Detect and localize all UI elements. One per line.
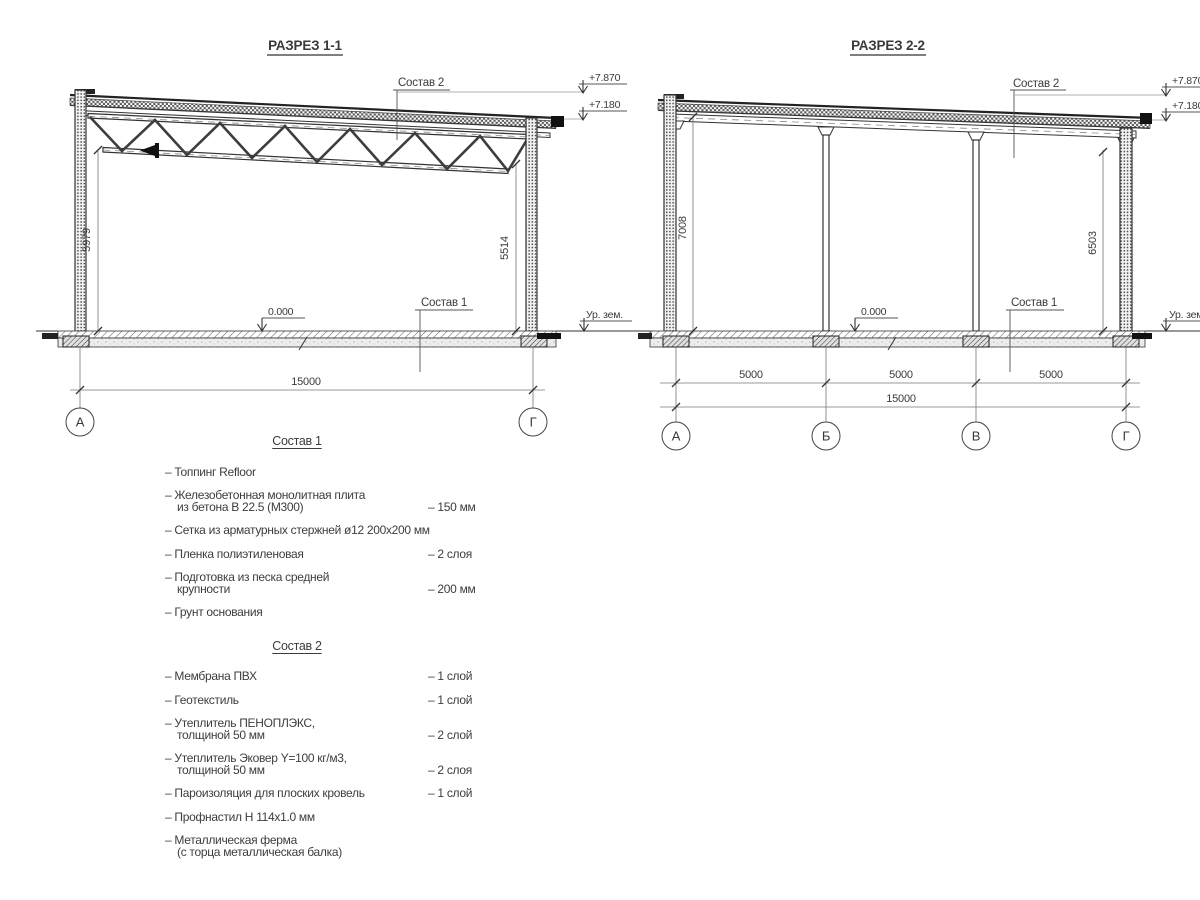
axis-markers: А Б В Г [662,422,1140,450]
column-v [973,140,979,331]
axis-v: В [972,429,980,444]
section-2-2-drawing: РАЗРЕЗ 2-2 [632,38,1200,450]
ground-level-label: Ур. зем. [1169,309,1200,321]
section-1-1-drawing: РАЗРЕЗ 1-1 [36,38,638,436]
dim-total: 15000 [886,393,916,405]
dim-height-right: 5514 [499,236,511,260]
axis-markers: А Г [66,408,547,436]
level-zero-label: 0.000 [268,306,294,318]
technical-drawing: РАЗРЕЗ 1-1 [0,0,1200,460]
sostav2-callout: Состав 2 [398,77,444,89]
item-value: – 1 слой [428,695,538,707]
floor-slab [36,331,638,350]
list-item: – Железобетонная монолитная плита из бет… [160,490,560,513]
list-item: – Металлическая ферма (с торца металличе… [160,835,560,858]
drawing-sheet: { "drawing": { "section1": { "title": "Р… [0,0,1200,900]
axis-g: Г [1123,429,1130,444]
list-item: – Сетка из арматурных стержней ø12 200x2… [160,525,560,537]
list-item: – Утеплитель Эковер Y=100 кг/м3, толщино… [160,753,560,776]
item-value: – 1 слой [428,671,538,683]
level-zero-label: 0.000 [861,306,887,318]
elevation-low-label: +7.180 [589,99,621,111]
list-item: – Мембрана ПВХ – 1 слой [160,671,560,683]
axis-b: Б [822,429,830,444]
roof-end-cap [1140,113,1152,124]
sostav1-callout: Состав 1 [1011,297,1057,309]
list-item: – Топпинг Refloor [160,467,560,479]
item-value: – 2 слоя [428,549,538,561]
left-wall [75,90,86,338]
section-2-title: РАЗРЕЗ 2-2 [851,38,925,53]
list-item: – Грунт основания [160,607,560,619]
sostav1-callout: Состав 1 [421,297,467,309]
foundation-pad [963,336,989,347]
section-1-title: РАЗРЕЗ 1-1 [268,38,342,53]
sostav1-list: Состав 1 – Топпинг Refloor – Железобетон… [160,436,560,619]
axis-g: Г [530,415,537,430]
right-wall [526,118,537,338]
elevation-top-label: +7.870 [1172,75,1200,87]
roof-assembly [658,100,1152,138]
elevation-top-label: +7.870 [589,72,621,84]
axis-a: А [672,429,681,444]
list-item: – Пароизоляция для плоских кровель – 1 с… [160,788,560,800]
sostav2-heading: Состав 2 [160,641,434,653]
foundation-pad [63,336,89,347]
list-item: – Подготовка из песка средней крупности … [160,572,560,595]
dim-height-left: 5979 [81,228,93,252]
dim-height-left: 7008 [677,216,689,240]
list-item: – Профнастил Н 114x1.0 мм [160,812,560,824]
right-wall [1120,128,1132,338]
axis-a: А [76,415,85,430]
dimensions: 5979 5514 15000 [70,146,545,408]
sostav1-heading: Состав 1 [160,436,434,448]
dim-bay-2: 5000 [889,369,913,381]
item-value: – 150 мм [428,502,538,514]
dim-span: 15000 [291,376,321,388]
dim-bay-1: 5000 [739,369,763,381]
item-value: – 1 слой [428,788,538,800]
foundation-pad [813,336,839,347]
list-item: – Утеплитель ПЕНОПЛЭКС, толщиной 50 мм –… [160,718,560,741]
list-item: – Геотекстиль – 1 слой [160,695,560,707]
roof-end-cap [551,116,564,127]
composition-lists: Состав 1 – Топпинг Refloor – Железобетон… [160,436,560,870]
sostav2-list: Состав 2 – Мембрана ПВХ – 1 слой – Геоте… [160,641,560,859]
dim-bay-3: 5000 [1039,369,1063,381]
elevation-low-label: +7.180 [1172,100,1200,112]
ground-level-label: Ур. зем. [586,309,623,321]
list-item: – Пленка полиэтиленовая – 2 слоя [160,549,560,561]
left-wall [664,95,676,338]
item-value: – 2 слой [428,730,538,742]
item-value: – 2 слоя [428,765,538,777]
sostav2-callout: Состав 2 [1013,78,1059,90]
column-b [823,135,829,331]
floor-slab [632,331,1200,350]
foundation-pad [663,336,689,347]
truss-splice-detail [155,143,159,158]
dimensions: 7008 6503 5000 5000 5000 15000 [660,113,1140,422]
item-value: – 200 мм [428,584,538,596]
dim-height-right: 6503 [1087,231,1099,255]
